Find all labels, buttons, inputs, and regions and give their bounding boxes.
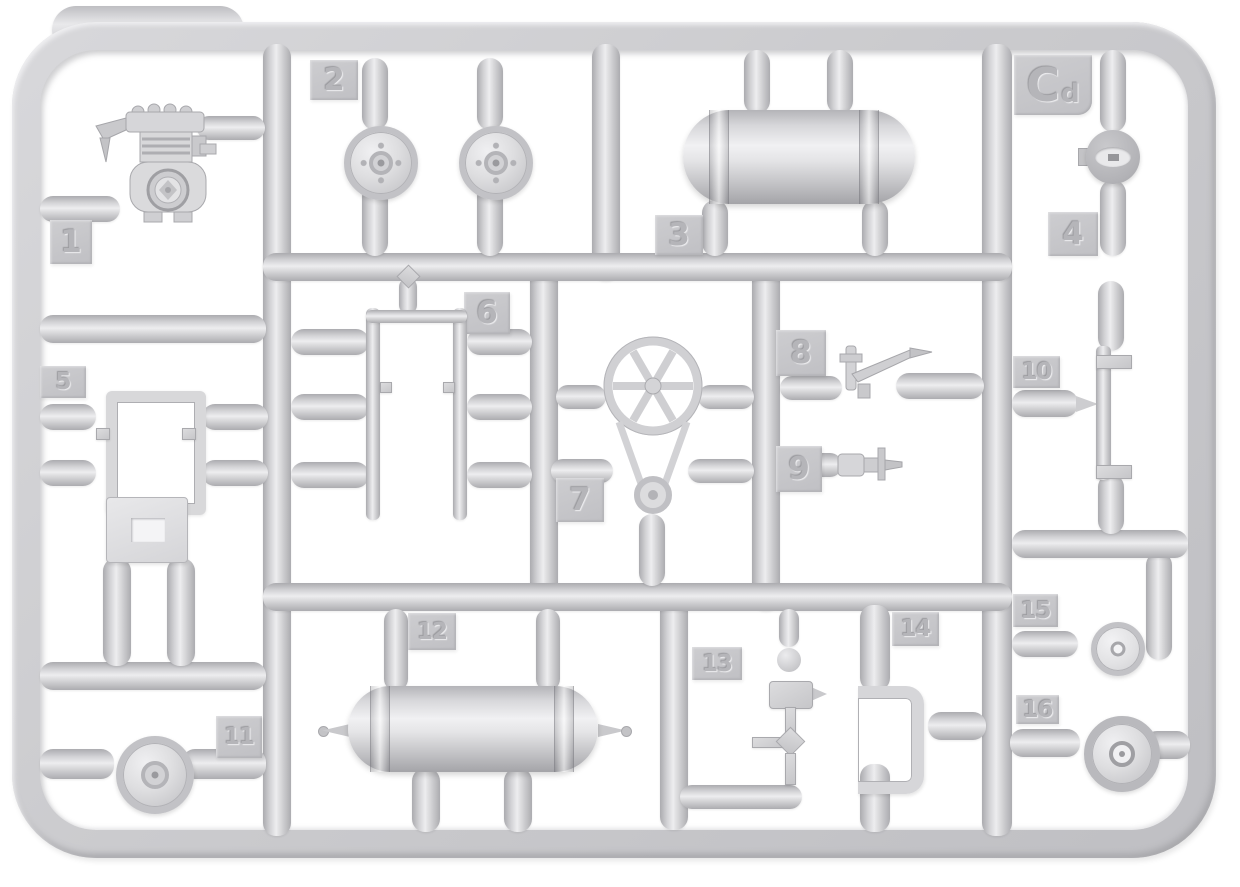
wheel-hole <box>493 160 500 167</box>
sprue-code-subletter: d <box>1061 79 1080 109</box>
runner-vertical-4 <box>530 253 558 611</box>
sprue-gate <box>291 394 369 420</box>
runner-vertical-7-stub <box>1146 552 1172 660</box>
part-13-t-fitting <box>769 681 813 709</box>
wheel-hole <box>378 160 385 167</box>
part-9-small-valve <box>836 444 906 486</box>
part-number-tab-5: 5 <box>40 366 86 398</box>
sprue-gate <box>103 558 131 666</box>
sprue-gate <box>40 404 96 430</box>
part-number-tab-16: 16 <box>1016 695 1059 724</box>
sprue-gate <box>167 558 195 666</box>
sprue-gate <box>202 460 268 486</box>
part-number-tab-11: 11 <box>216 716 262 758</box>
bracket-clip <box>96 428 110 440</box>
sprue-gate <box>202 404 268 430</box>
sprue-gate <box>40 460 96 486</box>
gate-tip <box>1076 396 1098 412</box>
sprue-code-letter: C <box>1026 62 1060 108</box>
sprue-gate <box>467 394 532 420</box>
part-7-fan-belt-pulley <box>595 336 711 518</box>
part-4-headlight <box>1086 130 1140 184</box>
tank-tip-ball <box>621 726 632 737</box>
ladder-clip <box>380 382 392 393</box>
part-12-tank <box>348 686 598 772</box>
wheel-hole <box>1119 751 1125 757</box>
sprue-gate <box>291 462 369 488</box>
runner-vertical-5 <box>752 253 780 611</box>
wheel-hole <box>1111 642 1126 657</box>
part-2-hatch-wheel <box>344 126 418 200</box>
sprue-photo: 1 2 3 Cd 4 5 6 7 8 9 10 11 12 13 14 15 1… <box>0 0 1240 887</box>
part-6-ladder-crossbar <box>366 310 467 323</box>
sprue-gate <box>639 514 665 586</box>
part-number-tab-15: 15 <box>1013 594 1058 627</box>
sprue-gate <box>779 609 799 647</box>
sprue-gate <box>362 58 388 130</box>
sprue-gate <box>744 50 770 114</box>
part-3-air-tank <box>683 110 915 204</box>
tank-band <box>370 686 390 772</box>
sprue-gate <box>384 609 408 691</box>
runner-horizontal-1 <box>263 253 1012 281</box>
fitting-tip <box>811 687 827 701</box>
sprue-gate <box>477 58 503 130</box>
bracket-flange <box>1096 465 1132 479</box>
part-13-pipe <box>785 753 796 785</box>
tank-band <box>859 110 879 204</box>
sprue-gate <box>536 609 560 691</box>
ladder-clip <box>443 382 455 393</box>
runner-branch-part13 <box>680 785 802 809</box>
tank-band <box>554 686 574 772</box>
sprue-gate <box>504 768 532 832</box>
bracket-clip <box>182 428 196 440</box>
part-number-tab-6: 6 <box>464 292 510 334</box>
runner-vertical-1 <box>263 44 291 836</box>
part-11-pulley-wheel <box>116 736 194 814</box>
part-number-tab-10: 10 <box>1013 356 1060 388</box>
part-13-ball-valve <box>777 648 801 672</box>
sprue-gate <box>1100 50 1126 132</box>
sprue-gate <box>1098 281 1124 351</box>
sprue-gate <box>1098 474 1124 534</box>
part-16-flanged-wheel <box>1084 716 1160 792</box>
runner-horizontal-2-left <box>40 662 266 690</box>
part-2-hatch-wheel <box>459 126 533 200</box>
tank-band <box>709 110 729 204</box>
runner-vertical-3 <box>982 44 1012 836</box>
sprue-code-tab: Cd <box>1014 55 1092 115</box>
sprue-gate <box>1012 390 1078 417</box>
sprue-gate <box>1010 729 1080 757</box>
part-1-air-compressor <box>88 100 248 232</box>
part-number-tab-14: 14 <box>892 612 939 646</box>
plate-slot <box>131 518 165 542</box>
part-6-ladder-rail <box>453 308 467 520</box>
sprue-gate <box>1100 180 1126 256</box>
sprue-gate <box>1012 631 1078 657</box>
sprue-gate <box>827 50 853 114</box>
headlight-slot <box>1108 154 1119 161</box>
sprue-gate <box>412 768 440 832</box>
sprue-gate <box>928 712 986 740</box>
runner-horizontal-2 <box>263 583 1012 611</box>
runner-horizontal-1-left <box>40 315 266 343</box>
sprue-gate <box>860 605 890 691</box>
sprue-gate <box>862 200 888 256</box>
part-15-small-pulley <box>1091 622 1145 676</box>
runner-vertical-2 <box>592 44 620 281</box>
bracket-flange <box>1096 355 1132 369</box>
part-number-tab-12: 12 <box>408 613 456 650</box>
part-number-tab-2: 2 <box>310 60 358 100</box>
runner-horizontal-2-right <box>1012 530 1188 558</box>
part-6-ladder-rail <box>366 308 380 520</box>
sprue-gate <box>291 329 369 355</box>
part-number-tab-1: 1 <box>50 220 92 264</box>
sprue-gate <box>702 200 728 256</box>
part-number-tab-3: 3 <box>655 215 703 255</box>
sprue-gate <box>40 749 114 779</box>
sprue-gate <box>467 462 532 488</box>
part-8-valve-lever <box>832 340 942 406</box>
part-5-plate <box>106 497 188 563</box>
part-number-tab-13: 13 <box>692 647 742 680</box>
part-number-tab-4: 4 <box>1048 212 1098 256</box>
part-number-tab-8: 8 <box>776 330 826 376</box>
part-14-u-bracket <box>858 686 924 794</box>
wheel-hole <box>152 772 159 779</box>
part-number-tab-9: 9 <box>776 446 822 492</box>
